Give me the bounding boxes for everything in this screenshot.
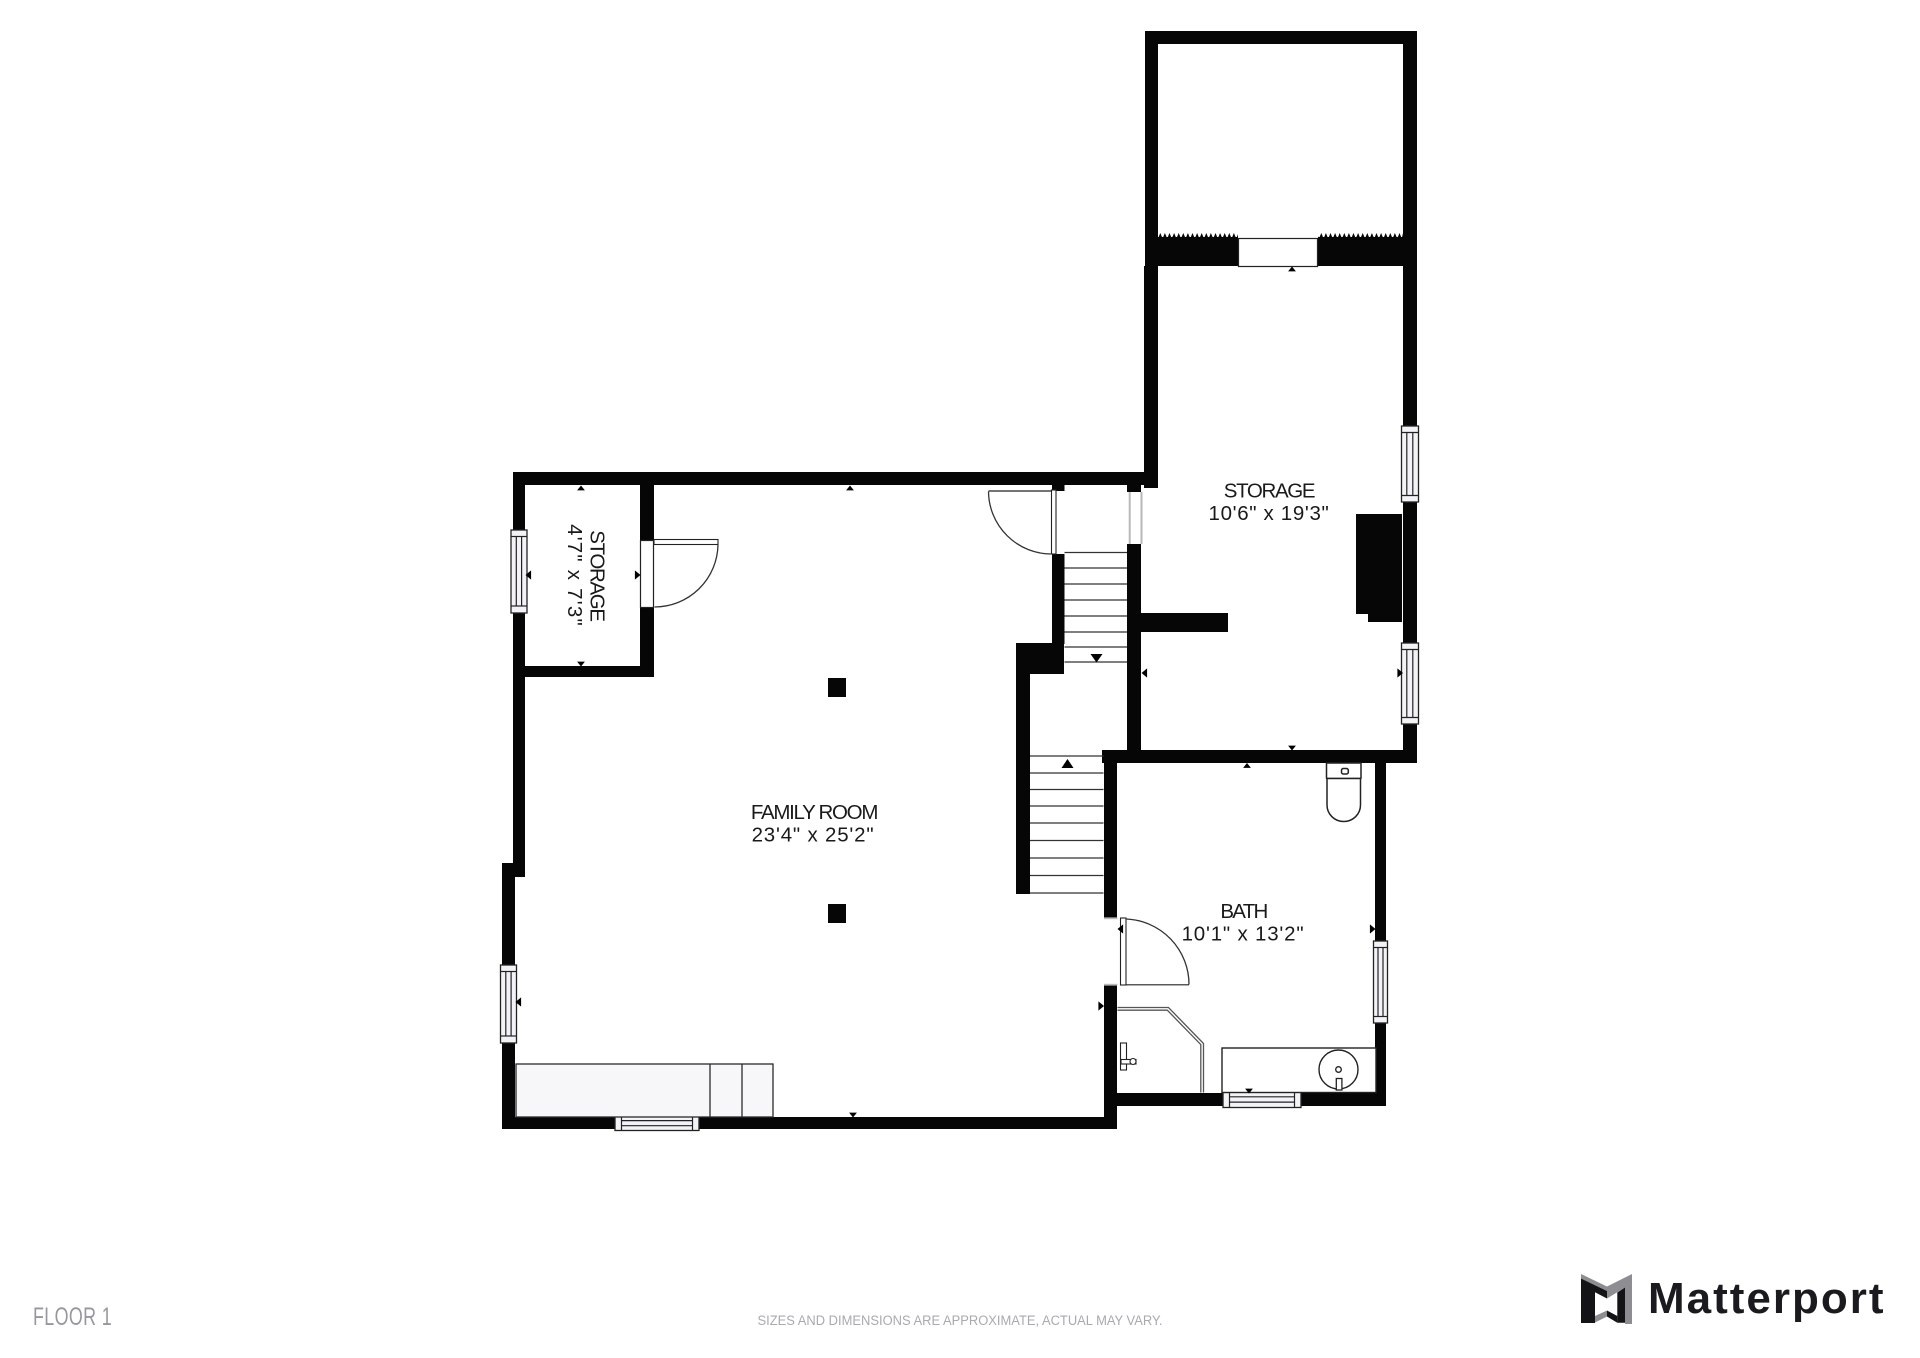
- svg-text:Matterport: Matterport: [1648, 1274, 1886, 1323]
- svg-text:BATH: BATH: [1220, 900, 1267, 923]
- svg-text:STORAGE: STORAGE: [586, 530, 609, 621]
- svg-text:SIZES AND DIMENSIONS ARE APPRO: SIZES AND DIMENSIONS ARE APPROXIMATE, AC…: [758, 1313, 1163, 1329]
- svg-text:23'4" x 25'2": 23'4" x 25'2": [752, 824, 875, 847]
- svg-text:10'1" x 13'2": 10'1" x 13'2": [1182, 923, 1305, 946]
- svg-text:FAMILY ROOM: FAMILY ROOM: [751, 801, 877, 824]
- svg-text:4'7" x 7'3": 4'7" x 7'3": [563, 524, 586, 627]
- svg-text:FLOOR 1: FLOOR 1: [33, 1303, 112, 1331]
- svg-text:STORAGE: STORAGE: [1224, 480, 1315, 503]
- svg-text:10'6" x 19'3": 10'6" x 19'3": [1209, 502, 1330, 525]
